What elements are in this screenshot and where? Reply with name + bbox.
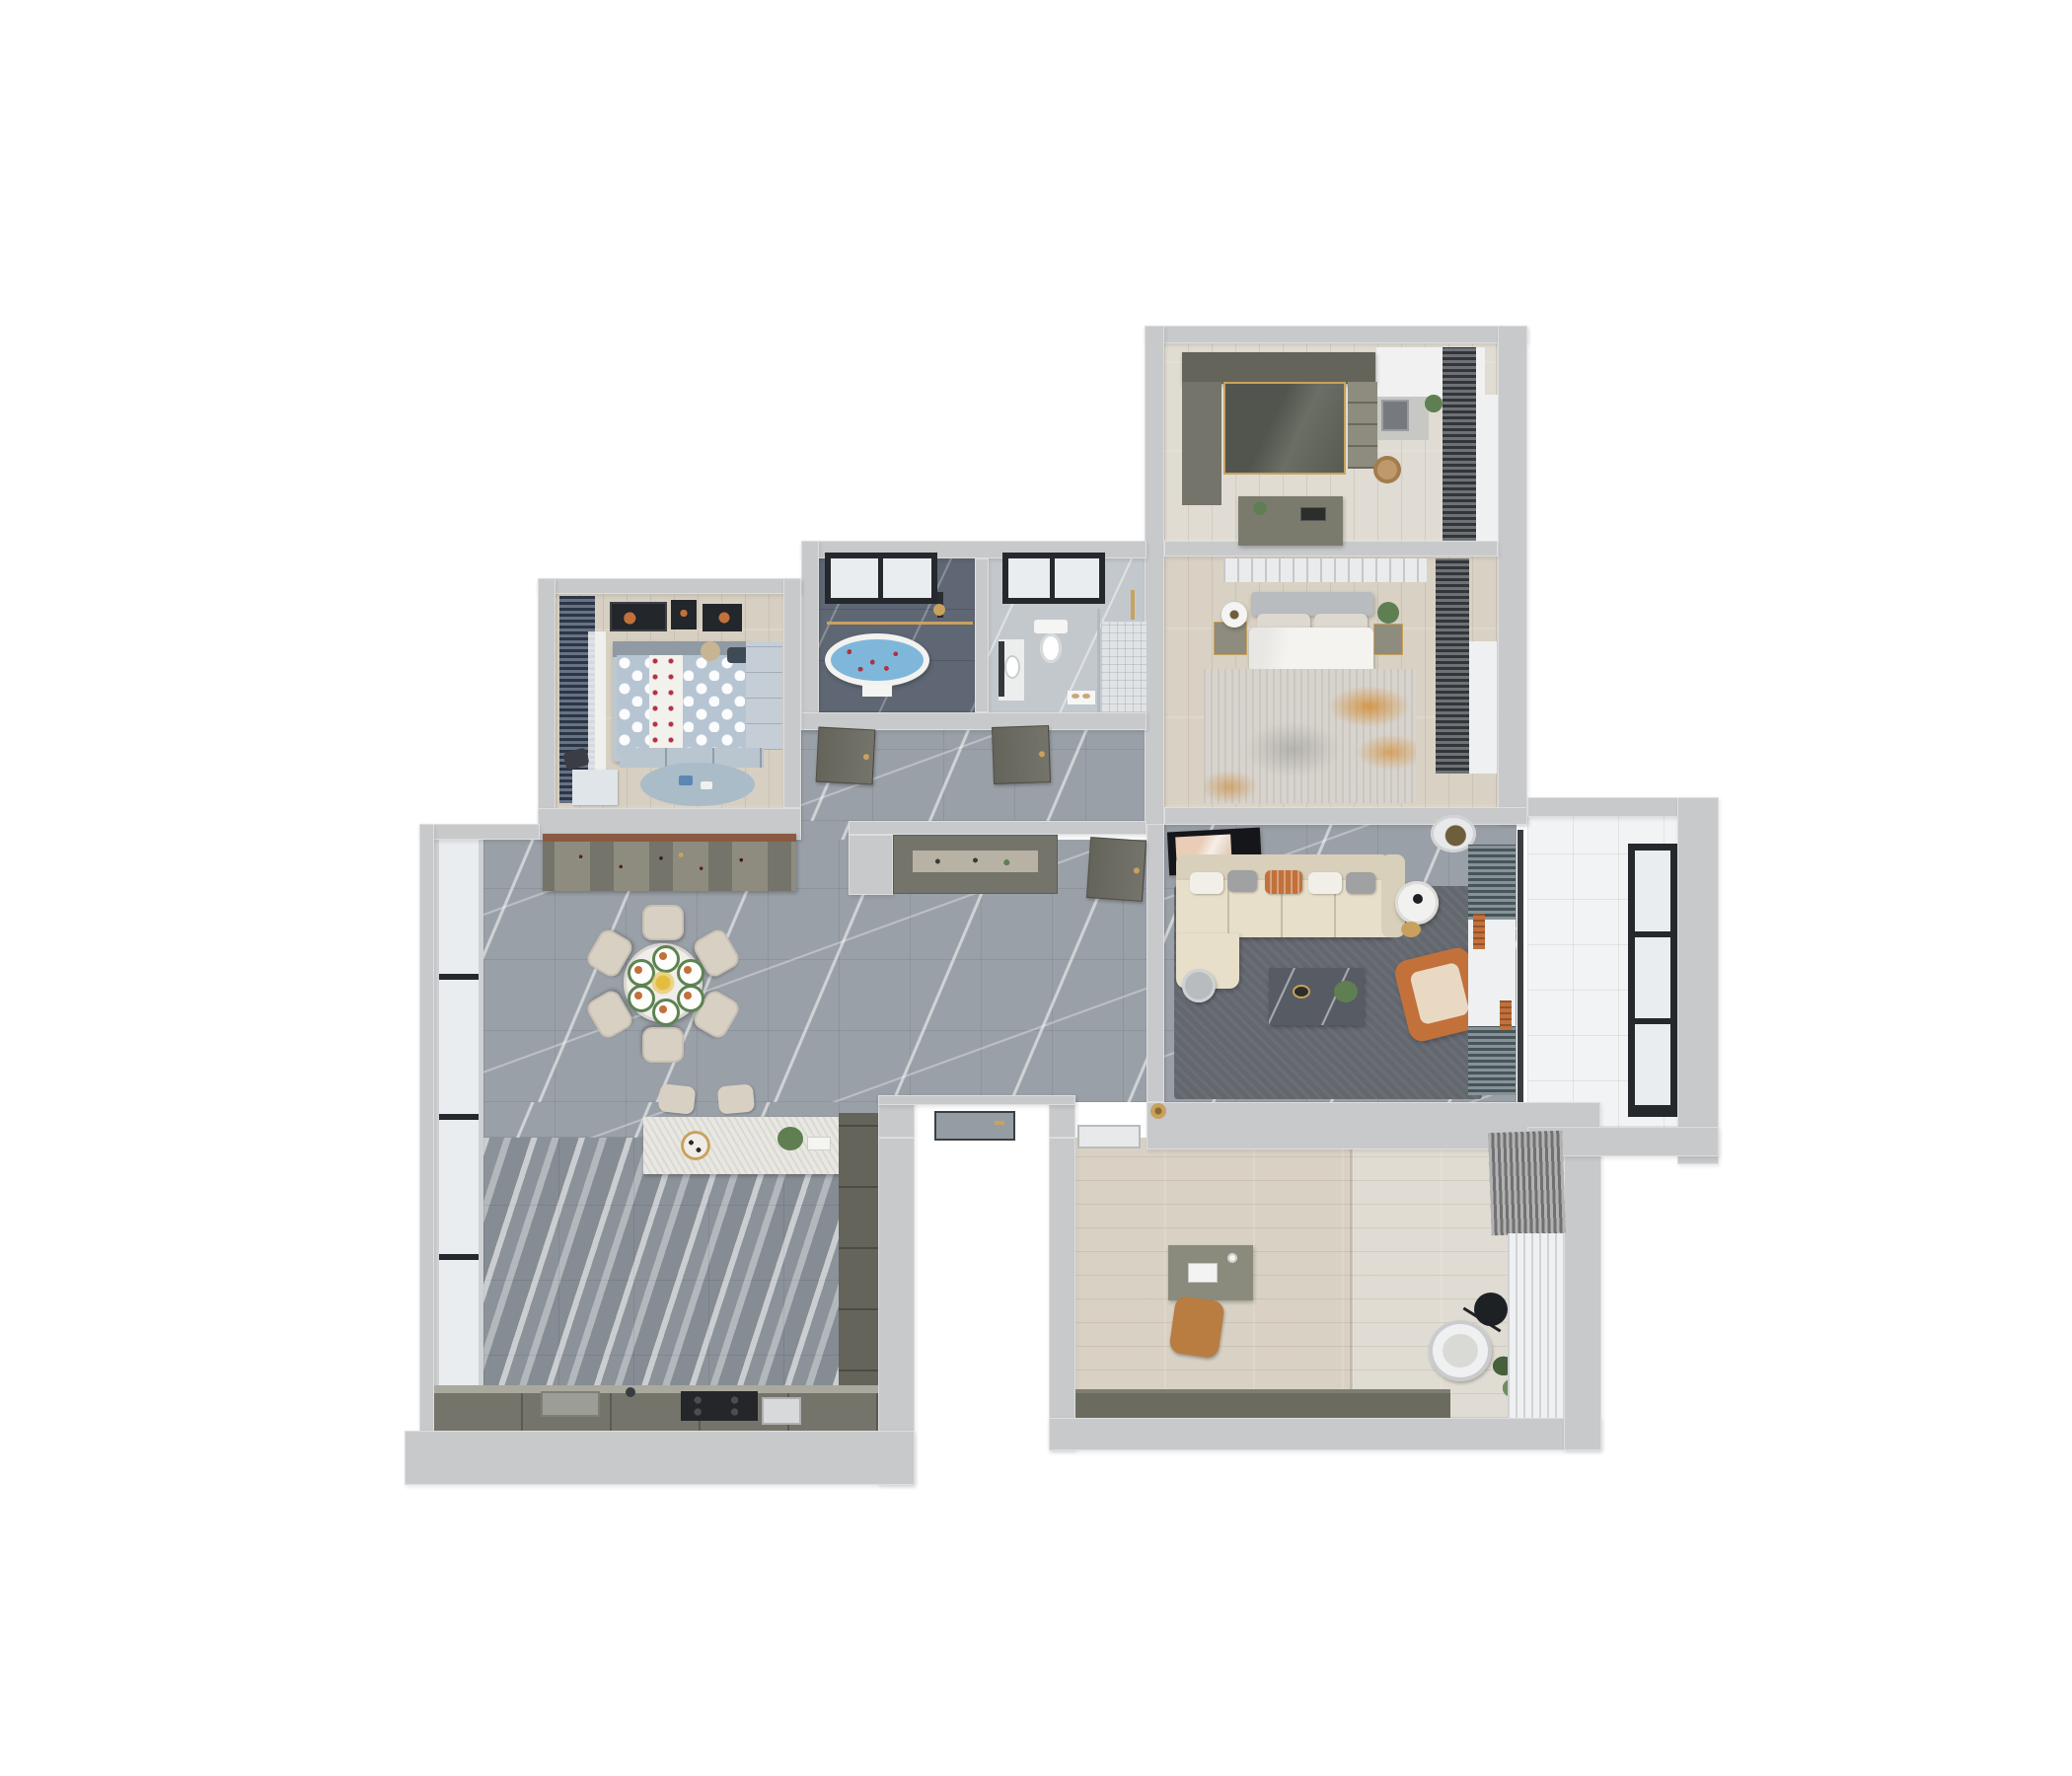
master-bed-headboard: [1251, 592, 1373, 616]
coffee-table-plant: [1334, 981, 1358, 1002]
wine-cabinet-bottles: [558, 847, 781, 880]
closet-curtains: [1443, 347, 1476, 541]
master-suite-door: [1086, 837, 1147, 902]
kitchen-faucet: [626, 1387, 635, 1397]
kids-toy-white: [701, 781, 712, 789]
wall-balcony-right: [1677, 797, 1719, 1164]
living-orange-blind-bottom: [1500, 1000, 1512, 1030]
bathroom-light-door: [992, 725, 1051, 784]
wall-closet-top: [1145, 326, 1527, 343]
study-floor-divider: [1350, 1138, 1353, 1418]
sofa-pillow-orange: [1265, 870, 1302, 894]
wall-foyer-living: [1147, 824, 1164, 1102]
wall-bath-left: [801, 541, 819, 730]
bar-stool-2: [717, 1083, 755, 1114]
sofa-pillow-white-1: [1190, 872, 1223, 894]
coffee-table-tray: [1293, 985, 1310, 999]
island-serving-tray: [681, 1131, 710, 1160]
island-plant: [777, 1127, 803, 1150]
living-teal-curtain-top: [1468, 845, 1516, 920]
table-decor-black: [1413, 894, 1423, 904]
dining-centerpiece-flowers: [651, 971, 675, 995]
floor-plan-render: [0, 0, 2072, 1776]
left-window-wall: [434, 840, 483, 1431]
kids-wardrobe: [746, 641, 782, 750]
kids-toy-blue: [679, 776, 693, 785]
sofa-pillow-white-2: [1308, 872, 1342, 894]
bathroom-dark-door: [816, 727, 876, 785]
wall-kids-top: [538, 578, 801, 594]
dining-plate-1: [652, 945, 680, 973]
wall-kitchen-bottom: [405, 1431, 915, 1485]
master-nightstand-right: [1373, 624, 1403, 655]
closet-vanity-mirror: [1381, 400, 1409, 431]
closet-side-cabinet: [1182, 382, 1221, 505]
living-teal-curtain-bottom: [1468, 1026, 1516, 1095]
closet-island-tray: [1300, 507, 1326, 521]
sofa-pillow-gray-1: [1227, 870, 1257, 892]
wall-notch-right: [1049, 1138, 1075, 1450]
gray-side-table: [1182, 969, 1216, 1002]
master-table-lamp: [1221, 602, 1247, 628]
wall-study-right: [1564, 1128, 1601, 1450]
study-laptop: [1188, 1263, 1218, 1283]
kitchen-tall-cabinet: [839, 1113, 878, 1431]
wall-kids-right: [783, 578, 801, 808]
wall-bath-divider: [975, 558, 989, 712]
kids-round-rug: [640, 763, 755, 806]
study-coffee-cup: [1227, 1253, 1237, 1263]
shower-glass-line: [1097, 609, 1100, 712]
slipper-left: [1072, 694, 1079, 699]
wall-hall-south: [849, 821, 1147, 835]
bath-shower-head: [933, 604, 945, 616]
closet-island-flowers: [1253, 501, 1267, 515]
closet-rattan-basket: [1373, 456, 1401, 483]
master-headboard-wall: [1223, 558, 1427, 582]
arc-floor-lamp-head: [1474, 1293, 1508, 1326]
kids-teddy-bear: [701, 641, 720, 661]
master-curtains: [1436, 558, 1469, 774]
wall-master-bottom: [1164, 807, 1527, 825]
bath-sink: [1004, 655, 1020, 679]
wall-right-column: [1498, 326, 1527, 824]
shower-gold-fixture: [1131, 590, 1135, 620]
toilet-bowl: [1040, 633, 1062, 663]
study-low-cabinet: [1075, 1389, 1450, 1418]
lounge-chair-cushion: [1443, 1334, 1478, 1368]
oval-bathtub: [825, 633, 929, 687]
closet-glass-wardrobe: [1223, 382, 1346, 475]
kids-bed-runner: [649, 655, 683, 758]
study-sheer-curtains: [1508, 1233, 1564, 1418]
bath-dark-window: [825, 553, 937, 604]
kitchen-cooktop: [681, 1391, 758, 1421]
bath-towel: [862, 685, 892, 697]
kitchen-base-cabinet: [434, 1385, 878, 1431]
foyer-cabinet-open-shelf: [913, 851, 1038, 872]
wall-kids-left: [538, 578, 555, 824]
kids-art-frame-small: [671, 600, 697, 629]
gold-floor-lamp: [1150, 1103, 1166, 1119]
dining-chair-4: [642, 1027, 684, 1063]
bath-vanity-mirror: [999, 641, 1004, 697]
study-entry-door: [1077, 1125, 1141, 1148]
sofa-pillow-gray-2: [1346, 872, 1375, 894]
wall-entry-lintel: [878, 1095, 1075, 1105]
dining-chair-1: [642, 905, 684, 940]
dining-plate-3: [677, 985, 704, 1012]
slipper-right: [1082, 694, 1090, 699]
wall-corridor-stub: [849, 835, 893, 895]
entry-door-handle: [995, 1121, 1004, 1125]
wall-left-outer: [419, 824, 434, 1441]
kids-art-frame-large: [610, 602, 667, 631]
kids-duvet: [617, 655, 749, 754]
balcony-panorama-window: [1628, 844, 1677, 1117]
bath-light-window: [1002, 553, 1105, 604]
dining-plate-2: [677, 959, 704, 987]
kitchen-oven: [762, 1397, 801, 1425]
wall-bath-bottom: [801, 712, 1147, 730]
kitchen-sink: [541, 1391, 600, 1417]
closet-plant: [1425, 395, 1443, 412]
wall-dining-topleft: [419, 824, 540, 840]
closet-shelf-unit: [1348, 382, 1377, 469]
entry-glass-door: [934, 1111, 1015, 1141]
balcony-door-track: [1517, 830, 1523, 1102]
island-cutting-board: [807, 1137, 831, 1150]
wall-study-bottom: [1049, 1418, 1601, 1450]
kids-art-frame-wide: [703, 604, 742, 631]
living-orange-blind-top: [1473, 914, 1485, 949]
dining-plate-5: [628, 985, 655, 1012]
dining-plate-4: [652, 999, 680, 1026]
bath-glass-partition: [827, 622, 973, 625]
bar-stool-1: [658, 1083, 697, 1115]
kids-sheer-curtain: [588, 631, 606, 779]
toilet-tank: [1034, 620, 1068, 633]
study-gray-curtains: [1488, 1131, 1566, 1236]
wall-left-column: [1145, 326, 1164, 829]
master-rug: [1204, 669, 1416, 803]
study-task-chair: [1168, 1295, 1225, 1359]
gold-stool: [1401, 922, 1421, 937]
shower-mosaic-floor: [1101, 622, 1147, 712]
master-plant: [1377, 602, 1399, 624]
kids-desk: [572, 770, 618, 805]
closet-wardrobe-run: [1182, 352, 1375, 384]
